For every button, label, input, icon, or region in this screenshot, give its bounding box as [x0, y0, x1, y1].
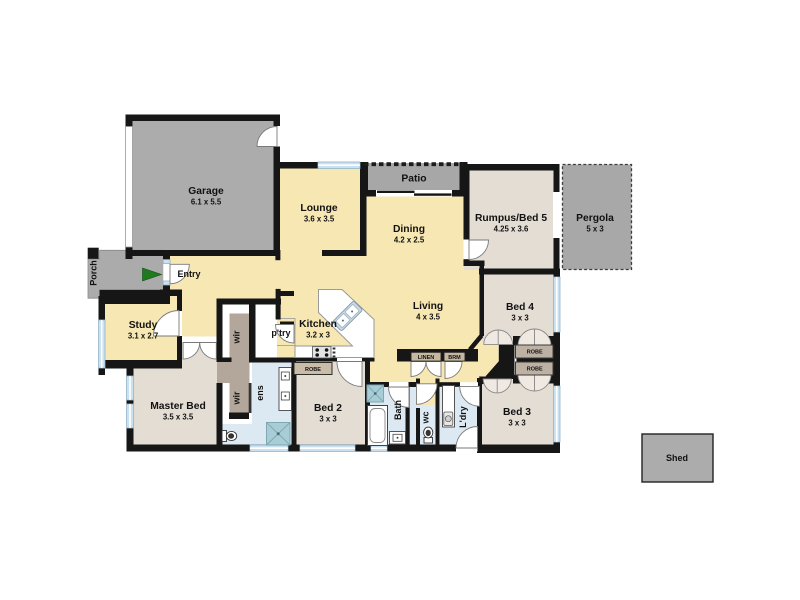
svg-text:4.2 x 2.5: 4.2 x 2.5: [394, 236, 425, 245]
svg-text:Rumpus/Bed 5: Rumpus/Bed 5: [475, 213, 547, 224]
svg-text:Kitchen: Kitchen: [299, 319, 337, 330]
svg-text:L'dry: L'dry: [458, 406, 468, 428]
svg-text:LINEN: LINEN: [418, 355, 435, 361]
svg-text:Shed: Shed: [666, 453, 688, 463]
svg-text:ROBE: ROBE: [305, 367, 321, 373]
svg-text:wc: wc: [421, 411, 431, 424]
svg-text:Living: Living: [413, 301, 443, 312]
svg-text:wir: wir: [232, 391, 242, 406]
svg-text:Study: Study: [129, 320, 158, 331]
svg-text:4 x 3.5: 4 x 3.5: [416, 313, 441, 322]
svg-text:p'try: p'try: [271, 328, 290, 338]
svg-text:3.5 x 3.5: 3.5 x 3.5: [163, 413, 194, 422]
svg-text:Bed 3: Bed 3: [503, 407, 531, 418]
svg-text:Entry: Entry: [177, 269, 200, 279]
svg-text:Bath: Bath: [393, 400, 403, 420]
svg-text:3 x 3: 3 x 3: [508, 419, 526, 428]
svg-text:3.2 x 3: 3.2 x 3: [306, 331, 331, 340]
svg-text:wir: wir: [232, 330, 242, 345]
svg-text:Pergola: Pergola: [576, 213, 614, 224]
svg-text:4.25 x 3.6: 4.25 x 3.6: [494, 225, 529, 234]
svg-text:6.1 x 5.5: 6.1 x 5.5: [191, 198, 222, 207]
svg-text:Garage: Garage: [188, 186, 224, 197]
svg-text:Bed 4: Bed 4: [506, 302, 534, 313]
svg-text:BRM: BRM: [448, 355, 461, 361]
svg-text:3.1 x 2.7: 3.1 x 2.7: [128, 332, 158, 341]
svg-text:Porch: Porch: [88, 260, 98, 286]
svg-text:Patio: Patio: [401, 174, 426, 185]
svg-text:Bed 2: Bed 2: [314, 403, 342, 414]
svg-text:Master Bed: Master Bed: [150, 401, 206, 412]
svg-text:3 x 3: 3 x 3: [511, 314, 529, 323]
svg-text:ROBE: ROBE: [527, 350, 543, 356]
svg-text:ROBE: ROBE: [527, 367, 543, 373]
svg-text:5 x 3: 5 x 3: [586, 225, 604, 234]
svg-text:Lounge: Lounge: [300, 203, 337, 214]
svg-text:ens: ens: [255, 385, 265, 401]
svg-text:3 x 3: 3 x 3: [319, 415, 337, 424]
svg-text:Dining: Dining: [393, 224, 425, 235]
svg-text:3.6 x 3.5: 3.6 x 3.5: [304, 215, 335, 224]
